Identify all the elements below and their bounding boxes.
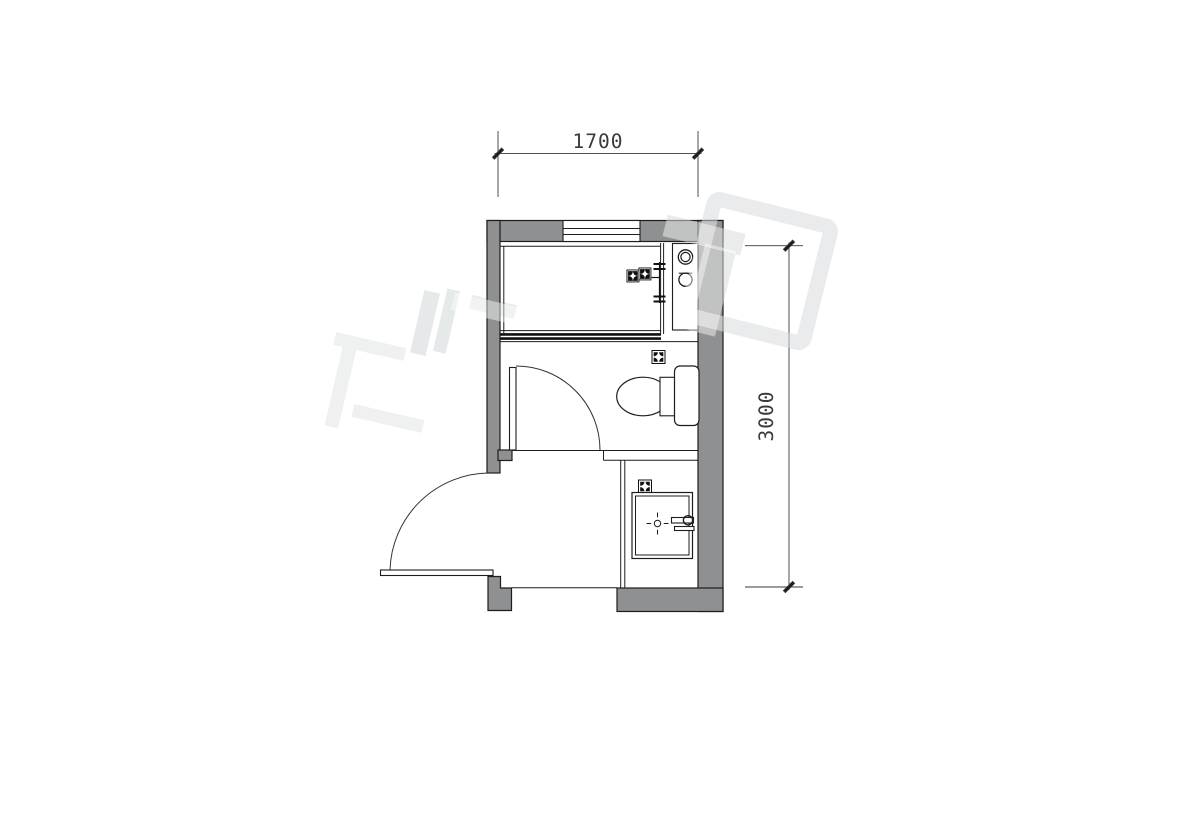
shower-mixer <box>627 262 666 303</box>
interior-door <box>510 366 601 450</box>
shower-area <box>500 243 698 342</box>
floor-plan-drawing: 1700 3000 <box>0 0 1198 831</box>
toilet-seat-plate <box>660 377 675 416</box>
entry-door-swing-arc <box>390 473 489 570</box>
wall-left <box>487 221 500 474</box>
dimension-width-label: 1700 <box>573 130 624 153</box>
toilet <box>617 366 699 426</box>
toilet-tank <box>675 366 700 426</box>
entry-door <box>381 473 618 588</box>
floor-plan-page: 1700 3000 <box>0 0 1198 831</box>
interior-door-swing-arc <box>516 366 600 450</box>
faucet <box>672 516 695 531</box>
vanity-counter <box>621 460 625 588</box>
washbasin <box>632 493 694 559</box>
wall-door-jamb <box>498 450 512 461</box>
wall-bottom-left-stub <box>488 577 512 611</box>
entry-door-leaf <box>381 570 494 576</box>
floor-drain-vanity <box>639 480 652 493</box>
dimension-height-label: 3000 <box>755 391 778 442</box>
interior-door-leaf <box>510 368 517 451</box>
window <box>563 221 640 242</box>
floor-drain-toilet-room <box>652 351 665 364</box>
washbasin-outer <box>632 493 693 559</box>
wall-bottom <box>617 588 723 612</box>
partition-lines <box>512 451 698 461</box>
